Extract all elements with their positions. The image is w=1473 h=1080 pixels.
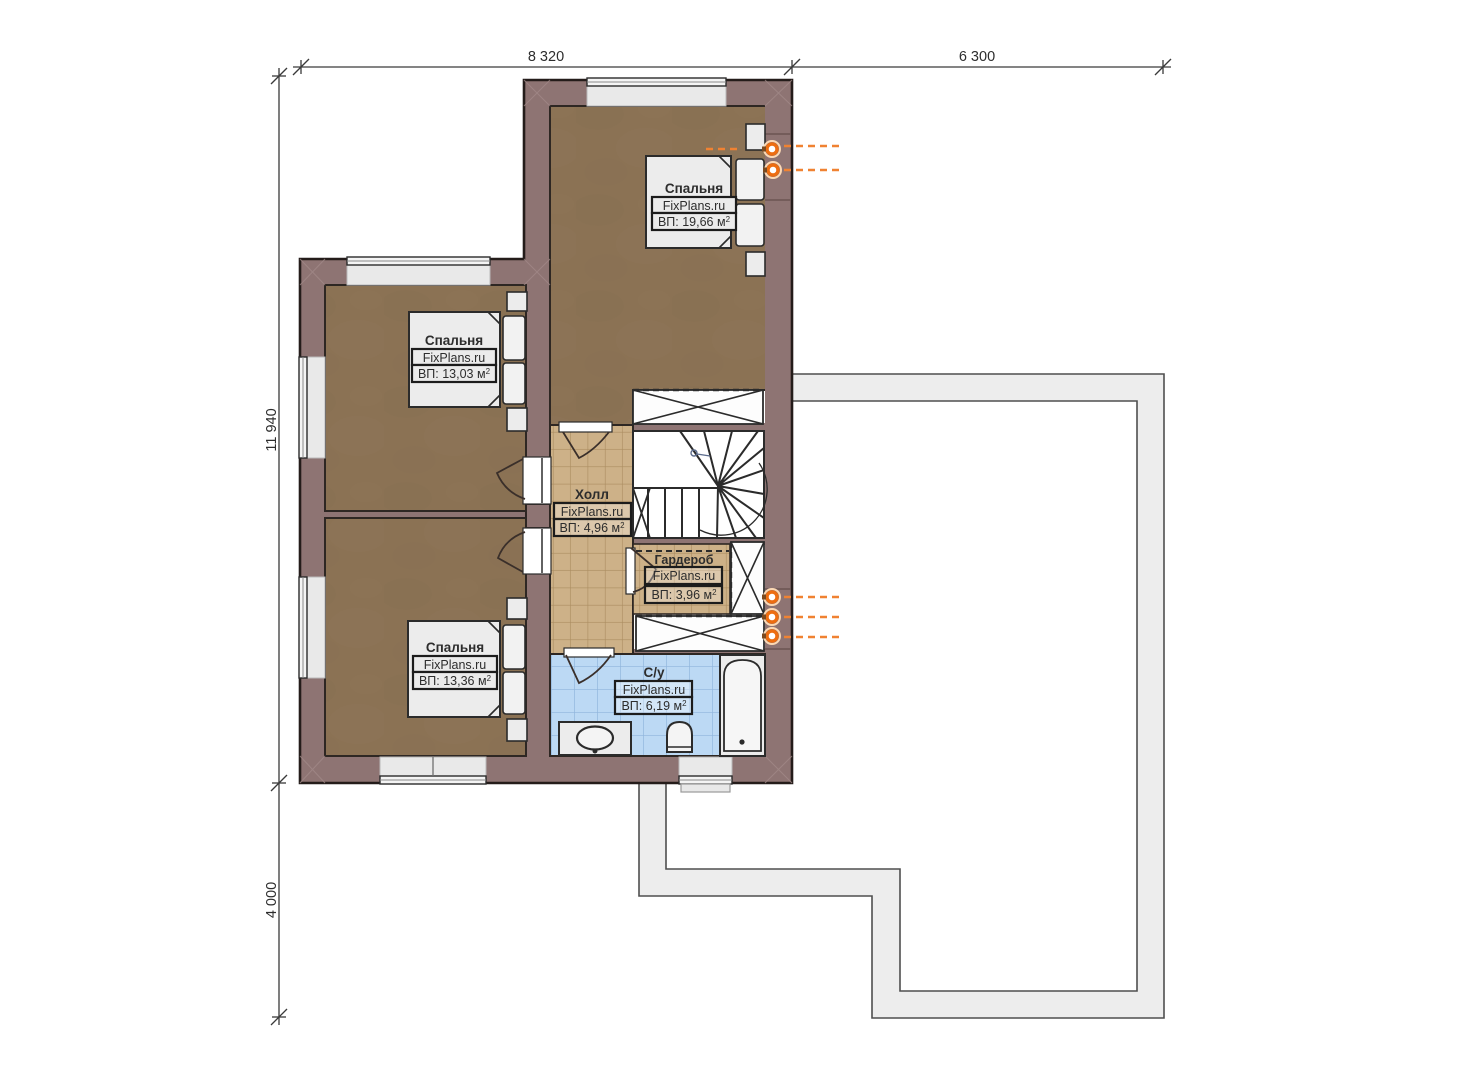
- svg-text:Спальня: Спальня: [426, 640, 484, 655]
- svg-text:ВП: 3,96 м2: ВП: 3,96 м2: [651, 588, 717, 602]
- svg-text:С/у: С/у: [643, 665, 665, 680]
- svg-text:Спальня: Спальня: [665, 181, 723, 196]
- svg-text:ВП: 13,03 м2: ВП: 13,03 м2: [418, 367, 491, 381]
- svg-text:ВП: 6,19 м2: ВП: 6,19 м2: [621, 699, 687, 713]
- svg-text:6 300: 6 300: [959, 49, 995, 65]
- svg-text:FixPlans.ru: FixPlans.ru: [663, 199, 726, 213]
- svg-text:8 320: 8 320: [528, 49, 564, 65]
- svg-text:FixPlans.ru: FixPlans.ru: [623, 683, 686, 697]
- svg-text:11 940: 11 940: [264, 408, 280, 451]
- svg-text:FixPlans.ru: FixPlans.ru: [424, 658, 487, 672]
- svg-text:4 000: 4 000: [264, 882, 280, 918]
- svg-text:Спальня: Спальня: [425, 333, 483, 348]
- svg-text:ВП: 13,36 м2: ВП: 13,36 м2: [419, 674, 492, 688]
- svg-text:Холл: Холл: [575, 487, 609, 502]
- svg-text:FixPlans.ru: FixPlans.ru: [653, 569, 716, 583]
- svg-text:Гардероб: Гардероб: [654, 553, 713, 567]
- svg-text:ВП: 4,96 м2: ВП: 4,96 м2: [559, 521, 625, 535]
- svg-text:FixPlans.ru: FixPlans.ru: [561, 505, 624, 519]
- svg-text:ВП: 19,66 м2: ВП: 19,66 м2: [658, 215, 731, 229]
- svg-text:FixPlans.ru: FixPlans.ru: [423, 351, 486, 365]
